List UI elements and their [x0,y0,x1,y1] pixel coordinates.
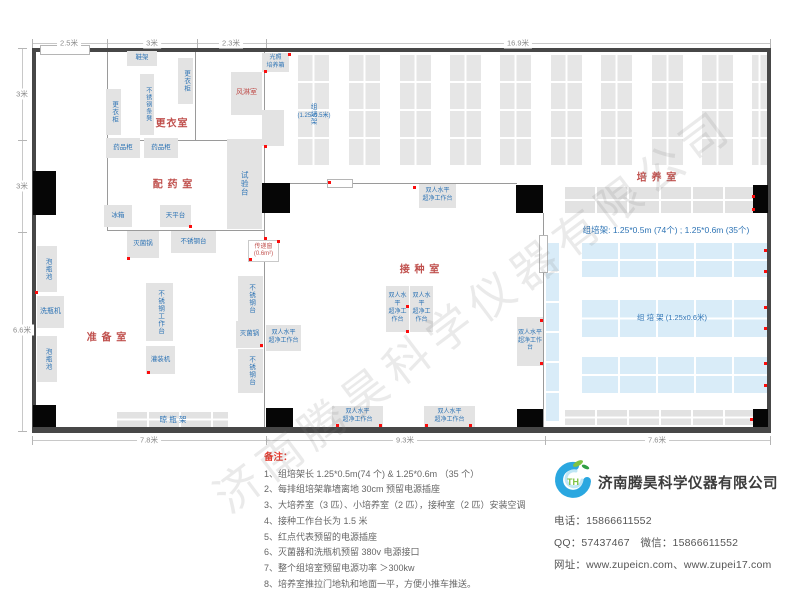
wall [195,52,196,141]
equipment-air-shower-room: 风淋室 [231,72,262,115]
tissue-culture-rack-blue [582,357,768,393]
dimension-label: 2.5米 [57,38,81,49]
structural-column [753,185,768,213]
clean-bench: 双人水平 超净工作台 [410,286,433,332]
company-phone: 电话：15866611552 [554,513,796,528]
notes-title: 备注： [264,450,549,467]
power-outlet-dot [752,195,755,198]
culture-rack-vertical [752,55,767,167]
culture-rack-vertical [652,55,683,167]
dimension-label: 3米 [143,38,161,49]
equipment-locker-cabinet: 更衣柜 [178,58,193,104]
power-outlet-dot [764,270,767,273]
tissue-culture-rack-blue [582,243,768,277]
equipment-stainless-table: 不锈钢台 [171,231,216,253]
culture-rack-vertical [551,55,582,167]
equipment-shelf [262,110,284,146]
floor-plan: 济南腾昊科学仪器有限公司 备注： 1、组培架长 1.25*0.5m(74 个) … [0,0,800,600]
note-line: 7、整个组培室预留电源功率 ＞300kw [264,561,549,577]
dimension-label: 16.9米 [504,38,532,49]
clean-bench: 双人水平 超净工作台 [424,406,475,427]
dimension-tick [32,436,33,445]
room-label: 配 药 室 [153,176,194,191]
note-line: 6、灭菌器和洗瓶机预留 380v 电源接口 [264,545,549,561]
power-outlet-dot [249,258,252,261]
power-outlet-dot [764,327,767,330]
power-outlet-dot [540,319,543,322]
equipment-rack-summary-label: 组培架: 1.25*0.5m (74个) ; 1.25*0.6m (35个) [575,224,757,237]
dimension-tick [18,48,27,49]
power-outlet-dot [336,424,339,427]
rack-horizontal [565,187,753,213]
equipment-stainless-table: 不锈钢台 [238,349,263,393]
power-outlet-dot [425,424,428,427]
note-line: 2、每排组培架靠墙离地 30cm 预留电源插座 [264,482,549,498]
dimension-label: 3米 [13,181,31,192]
equipment-bottle-soaking-pool: 泡瓶池 [37,336,57,382]
notes-block: 备注： 1、组培架长 1.25*0.5m(74 个) & 1.25*0.6m （… [264,450,549,593]
door [539,235,548,273]
power-outlet-dot [764,306,767,309]
culture-rack-vertical [702,55,733,167]
wall [32,48,36,432]
dimension-tick [107,39,108,48]
equipment-medicine-cabinet: 药品柜 [144,138,178,158]
power-outlet-dot [752,208,755,211]
wall [32,427,771,433]
company-block: TH 济南腾昊科学仪器有限公司 电话：15866611552 QQ：574374… [554,459,796,572]
dimension-tick [197,39,198,48]
wall [767,48,771,432]
power-outlet-dot [750,418,753,421]
dimension-tick [770,436,771,445]
dimension-tick [18,140,27,141]
note-line: 5、红点代表预留的电源插座 [264,530,549,546]
power-outlet-dot [264,70,267,73]
dimension-label: 2.3米 [219,38,243,49]
dimension-tick [32,39,33,48]
power-outlet-dot [288,53,291,56]
structural-column [266,408,293,427]
dimension-label: 7.6米 [645,435,669,446]
structural-column [262,183,290,213]
culture-rack-vertical [400,55,431,167]
structural-column [753,409,768,427]
power-outlet-dot [35,291,38,294]
equipment-stainless-table: 不锈钢台 [238,276,263,322]
dimension-label: 9.3米 [393,435,417,446]
power-outlet-dot [260,344,263,347]
power-outlet-dot [277,240,280,243]
clean-bench: 双人水平 超净工作台 [386,286,409,332]
power-outlet-dot [540,362,543,365]
equipment-stainless-bench: 不锈钢条凳 [140,74,154,135]
rack-horizontal [565,410,753,425]
equipment-rack-label: (1.25x0.5米) [288,112,340,122]
dimension-tick [545,436,546,445]
culture-rack-vertical [349,55,380,167]
power-outlet-dot [469,424,472,427]
equipment-balance-table: 天平台 [160,205,191,227]
equipment-medicine-cabinet: 药品柜 [106,138,140,158]
note-line: 8、培养室推拉门地轨和地面一平，方便小推车推送。 [264,577,549,593]
equipment-filling-machine: 灌装机 [146,346,175,374]
culture-rack-vertical [450,55,481,167]
power-outlet-dot [406,330,409,333]
clean-bench: 双人水平 超净工作台 [332,406,383,427]
company-website: 网址：www.zupeicn.com、www.zupei17.com [554,557,796,572]
room-label: 更衣室 [156,115,189,130]
equipment-sterilizer: 灭菌锅 [127,231,159,258]
structural-column [517,409,543,427]
structural-column [33,405,56,427]
equipment-bottle-washer: 洗瓶机 [37,296,64,328]
dimension-tick [770,39,771,48]
equipment-sterilizer: 灭菌锅 [236,321,263,348]
power-outlet-dot [406,305,409,308]
dimension-label: 3米 [13,89,31,100]
clean-bench: 双人水平 超净工作台 [517,317,543,366]
equipment-test-bench: 试验台 [227,139,262,229]
power-outlet-dot [764,362,767,365]
power-outlet-dot [127,257,130,260]
clean-bench: 双人水平 超净工作台 [419,184,456,208]
structural-column [516,185,543,213]
dimension-line [22,48,23,432]
dimension-tick [18,232,27,233]
note-line: 1、组培架长 1.25*0.5m(74 个) & 1.25*0.6m （35 个… [264,467,549,483]
power-outlet-dot [264,145,267,148]
note-line: 4、接种工作台长为 1.5 米 [264,514,549,530]
structural-column [33,171,56,215]
equipment-bottle-drying-rack-label: 晾 瓶 架 [130,414,216,425]
dimension-tick [266,436,267,445]
equipment-stainless-worktable: 不锈钢工作台 [146,283,173,341]
culture-rack-vertical [500,55,531,167]
company-name: 济南腾昊科学仪器有限公司 [598,472,778,493]
company-logo-icon: TH [554,459,592,506]
equipment-locker-cabinet: 更衣柜 [106,89,121,135]
dimension-tick [266,39,267,48]
room-label: 准 备 室 [87,329,128,344]
dimension-label: 6.6米 [10,325,34,336]
equipment-pass-through-window: 传递窗 (0.6m²) [248,240,279,262]
power-outlet-dot [147,371,150,374]
equipment-rack-label: 组 培 架 (1.25x0.6米) [602,312,742,324]
clean-bench: 双人水平 超净工作台 [266,325,301,351]
power-outlet-dot [764,249,767,252]
power-outlet-dot [764,384,767,387]
room-label: 培 养 室 [637,169,678,184]
power-outlet-dot [413,186,416,189]
company-qq-wechat: QQ：57437467 微信：15866611552 [554,535,796,550]
dimension-tick [18,431,27,432]
note-line: 3、大培养室（3 匹）、小培养室（2 匹），接种室（2 匹）安装空调 [264,498,549,514]
svg-text:TH: TH [567,477,579,487]
power-outlet-dot [379,424,382,427]
room-label: 接 种 室 [400,261,441,276]
power-outlet-dot [189,225,192,228]
culture-rack-vertical [601,55,632,167]
power-outlet-dot [264,237,267,240]
dimension-label: 7.8米 [137,435,161,446]
equipment-shoe-rack: 鞋架 [127,51,157,66]
power-outlet-dot [328,181,331,184]
equipment-refrigerator: 冰箱 [104,205,132,227]
equipment-bottle-soaking-pool: 泡瓶池 [37,246,57,292]
wall [290,183,517,184]
